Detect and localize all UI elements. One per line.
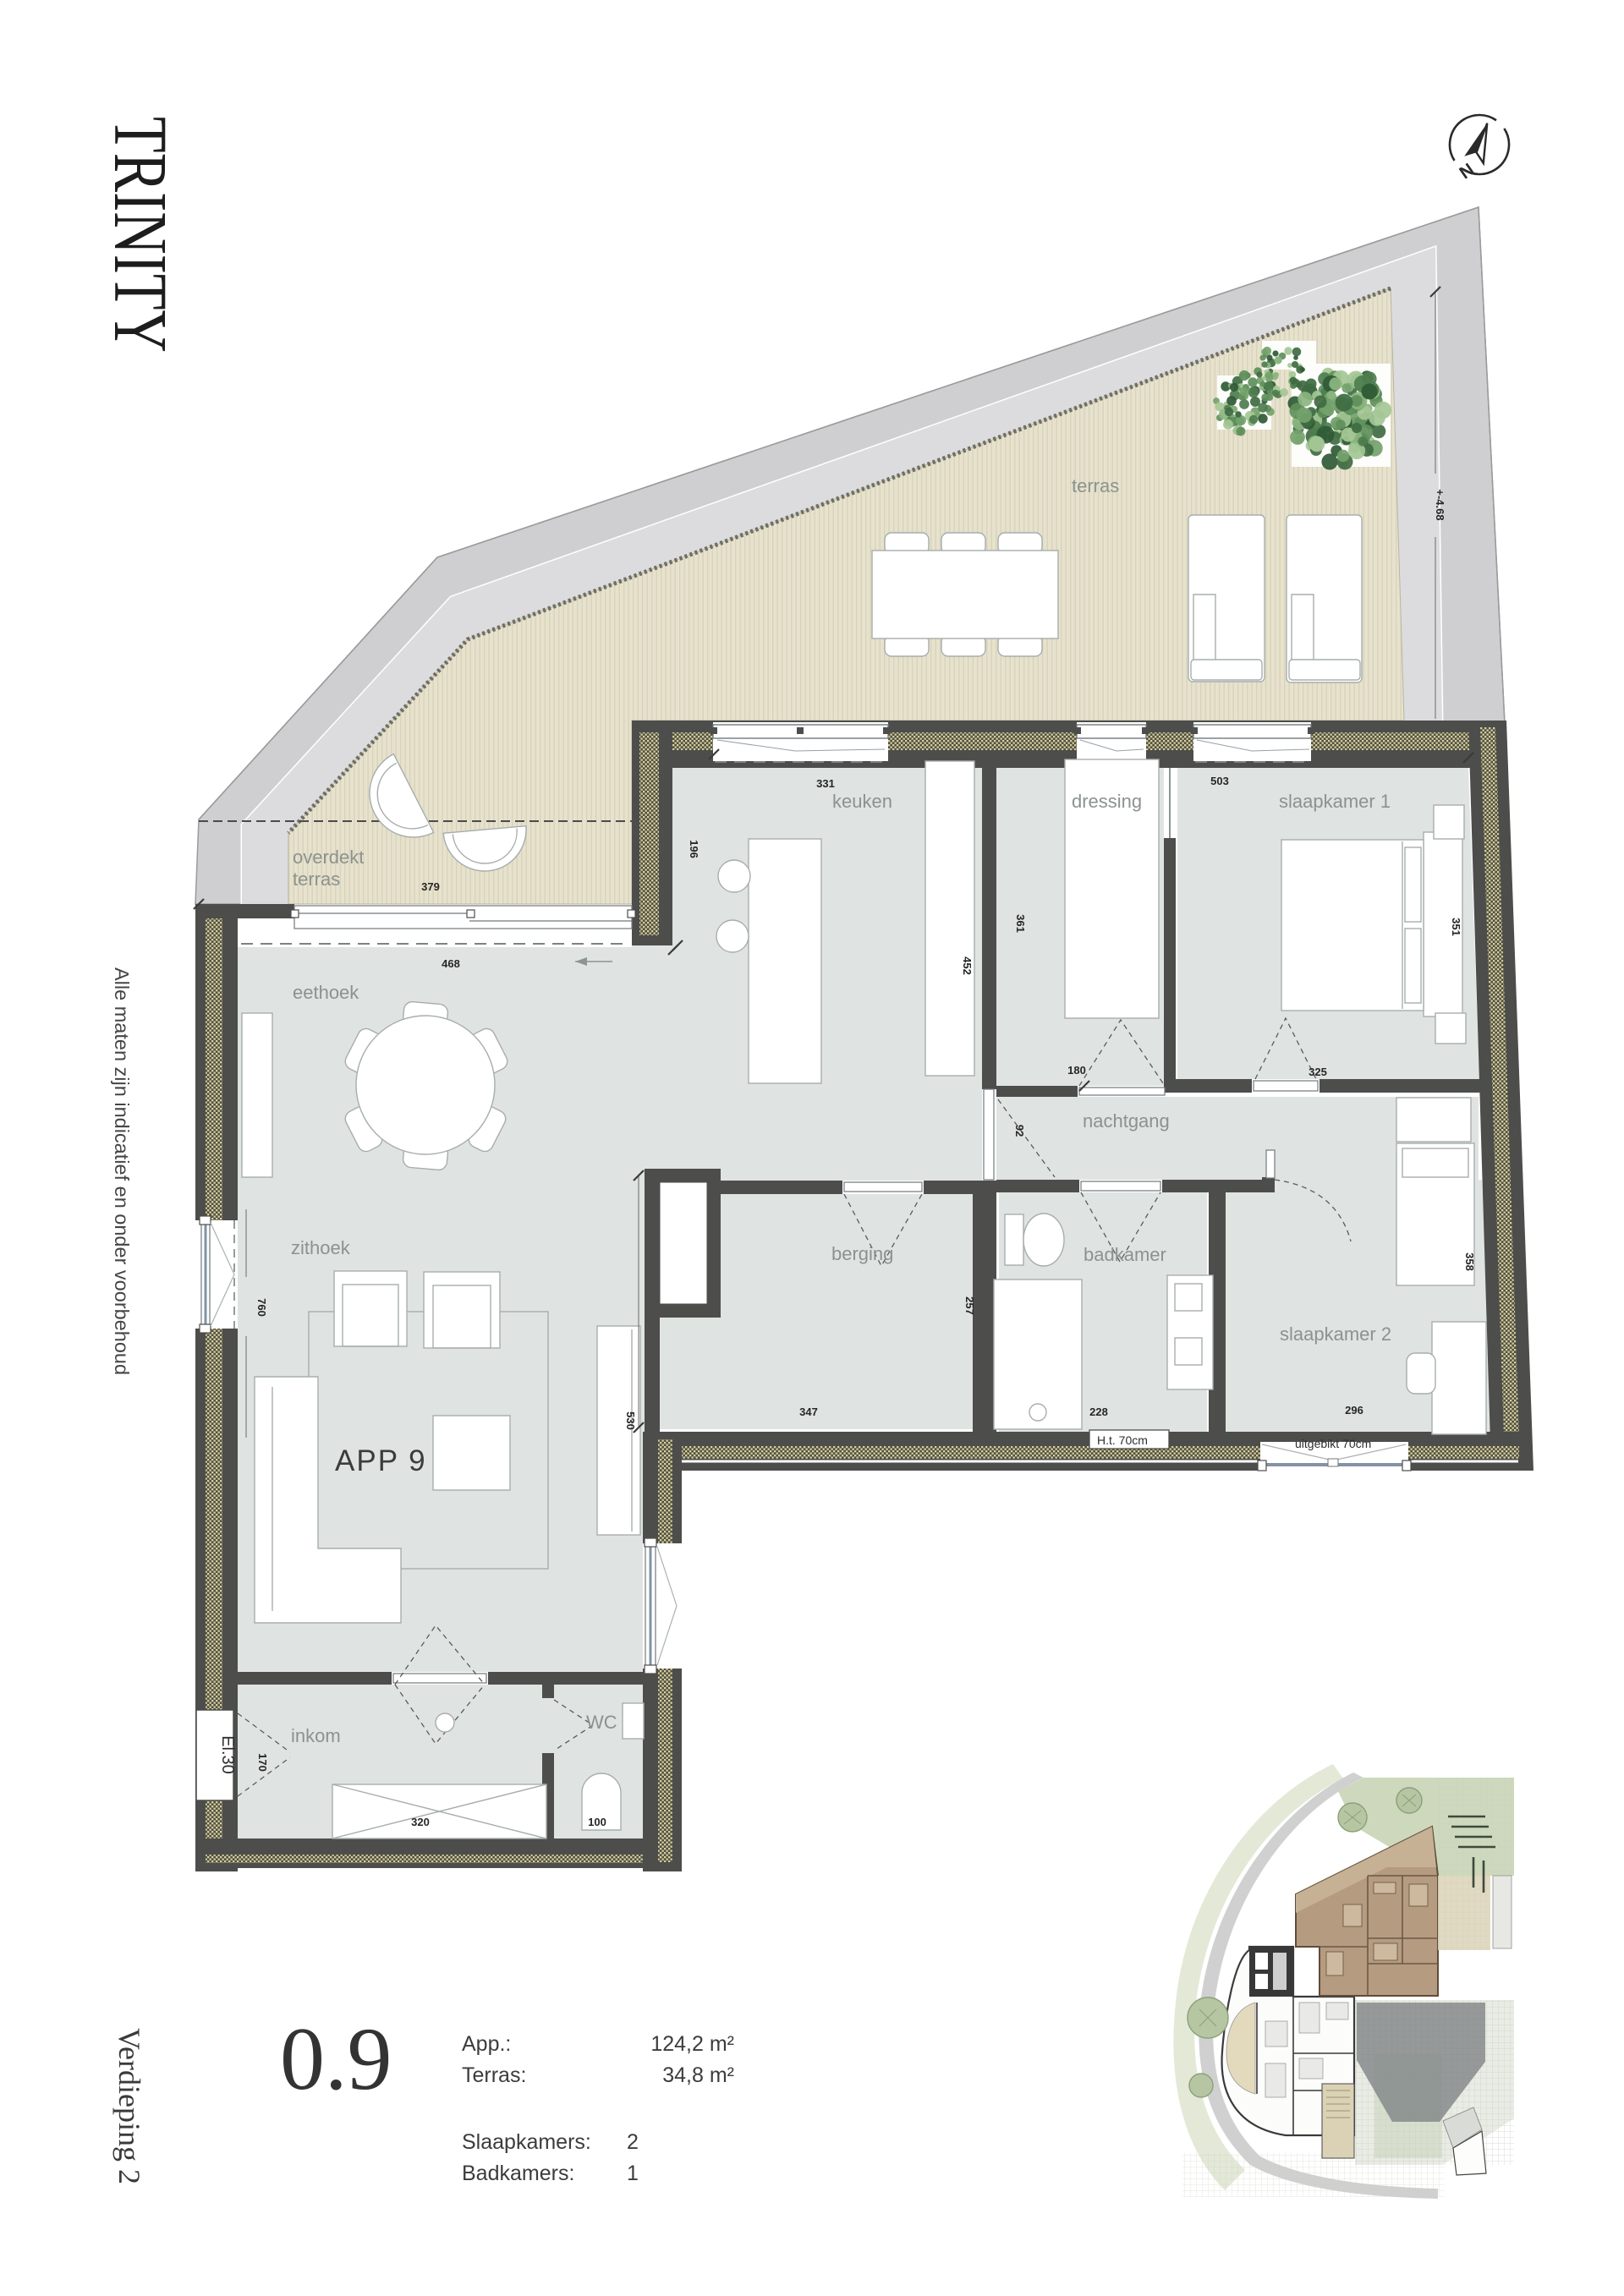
svg-text:325: 325 <box>1309 1066 1327 1078</box>
svg-text:468: 468 <box>442 957 460 970</box>
svg-text:320: 320 <box>411 1816 430 1828</box>
svg-text:zithoek: zithoek <box>291 1237 351 1258</box>
svg-text:nachtgang: nachtgang <box>1083 1110 1170 1132</box>
svg-text:452: 452 <box>961 956 974 975</box>
svg-text:WC: WC <box>586 1712 617 1733</box>
svg-text:keuken: keuken <box>832 791 892 812</box>
svg-text:terras: terras <box>1072 475 1119 496</box>
svg-text:2: 2 <box>627 2130 639 2154</box>
svg-text:berging: berging <box>831 1243 893 1264</box>
svg-text:100: 100 <box>588 1816 606 1828</box>
svg-text:Terras:: Terras: <box>462 2063 526 2087</box>
svg-text:358: 358 <box>1463 1252 1476 1271</box>
svg-text:170: 170 <box>256 1753 269 1772</box>
svg-text:0.9: 0.9 <box>280 2009 392 2108</box>
svg-text:124,2 m²: 124,2 m² <box>650 2032 734 2056</box>
svg-text:slaapkamer 1: slaapkamer 1 <box>1279 791 1391 812</box>
svg-text:N: N <box>1456 160 1478 184</box>
svg-text:badkamer: badkamer <box>1084 1244 1166 1265</box>
svg-text:361: 361 <box>1014 914 1027 933</box>
svg-text:El.30: El.30 <box>218 1735 237 1774</box>
svg-text:379: 379 <box>421 880 440 893</box>
svg-text:34,8 m²: 34,8 m² <box>662 2063 734 2087</box>
svg-text:503: 503 <box>1210 775 1229 787</box>
svg-text:APP 9: APP 9 <box>335 1444 427 1477</box>
svg-text:180: 180 <box>1067 1064 1086 1077</box>
svg-text:H.t. 70cm: H.t. 70cm <box>1097 1433 1148 1447</box>
svg-text:530: 530 <box>624 1411 637 1430</box>
svg-text:uitgebikt 70cm: uitgebikt 70cm <box>1295 1437 1371 1450</box>
svg-text:228: 228 <box>1089 1406 1108 1418</box>
svg-text:331: 331 <box>816 777 835 790</box>
svg-text:Alle maten zijn indicatief en: Alle maten zijn indicatief en onder voor… <box>111 967 133 1375</box>
svg-text:eethoek: eethoek <box>293 982 359 1003</box>
svg-text:terras: terras <box>293 869 340 890</box>
svg-text:App.:: App.: <box>462 2032 511 2056</box>
svg-text:351: 351 <box>1450 918 1462 936</box>
svg-text:Slaapkamers:: Slaapkamers: <box>462 2130 591 2154</box>
svg-text:TRINITY: TRINITY <box>98 117 182 353</box>
svg-text:760: 760 <box>255 1298 268 1317</box>
svg-text:Verdieping 2: Verdieping 2 <box>112 2028 146 2184</box>
svg-text:347: 347 <box>799 1406 818 1418</box>
svg-text:Badkamers:: Badkamers: <box>462 2162 574 2185</box>
svg-text:inkom: inkom <box>291 1725 341 1746</box>
svg-text:slaapkamer 2: slaapkamer 2 <box>1280 1323 1391 1345</box>
svg-text:196: 196 <box>688 840 700 858</box>
svg-text:dressing: dressing <box>1072 791 1142 812</box>
svg-text:+-4.68: +-4.68 <box>1434 489 1446 520</box>
svg-text:92: 92 <box>1013 1125 1026 1137</box>
svg-text:296: 296 <box>1345 1404 1363 1417</box>
svg-text:257: 257 <box>963 1296 976 1315</box>
svg-text:1: 1 <box>627 2162 639 2185</box>
svg-text:overdekt: overdekt <box>293 847 364 868</box>
